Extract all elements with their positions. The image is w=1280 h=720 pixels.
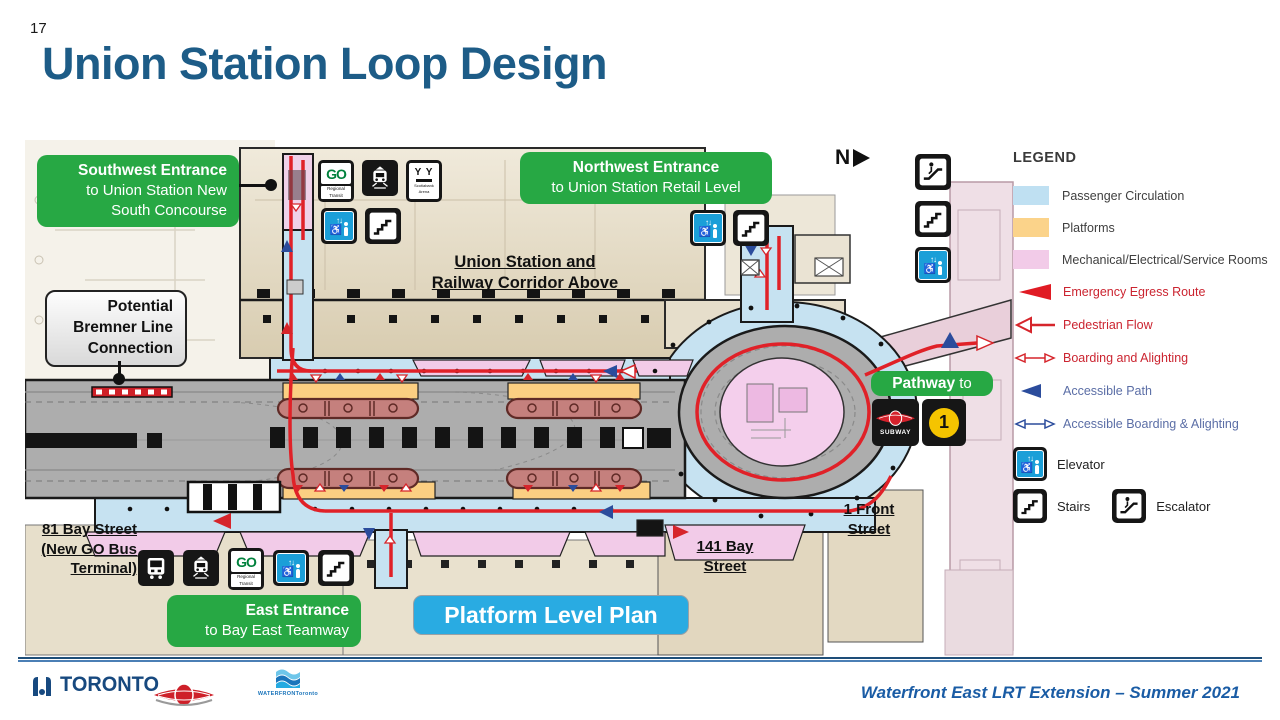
escalator-icon: [915, 154, 951, 190]
ttc-logo: [875, 409, 916, 427]
station-plan: Southwest Entrance to Union Station New …: [25, 140, 1015, 657]
go-transit-icon: GO Regional Transit: [228, 548, 264, 590]
ttc-logo: [152, 681, 216, 709]
stairs-icon: [318, 550, 354, 586]
bus-icon: [138, 550, 174, 586]
platform-level-plan-badge: Platform Level Plan: [413, 595, 689, 635]
page-title: Union Station Loop Design: [42, 38, 607, 90]
swatch-passenger-circulation: [1013, 186, 1049, 205]
stairs-icon: [915, 201, 951, 237]
legend-item-passenger-circulation: Passenger Circulation: [1013, 186, 1279, 205]
callout-east-entrance: East Entrance to Bay East Teamway: [167, 595, 361, 647]
stairs-icon: [733, 210, 769, 246]
label-1-front-street: 1 Front Street: [825, 500, 913, 539]
rail-icon: [183, 550, 219, 586]
legend-item-accessible-path: Accessible Path: [1013, 381, 1279, 401]
footer-divider: [18, 657, 1262, 662]
stairs-icon: [365, 208, 401, 244]
double-red-arrow-icon: [1013, 348, 1057, 368]
solid-blue-arrow-icon: [1013, 381, 1057, 401]
legend-item-stairs-escalator: Stairs Escalator: [1013, 489, 1279, 523]
callout-connector-dot: [265, 179, 277, 191]
legend-item-emergency-egress: Emergency Egress Route: [1013, 282, 1279, 302]
elevator-icon: ↑↓ ♿: [321, 208, 357, 244]
toronto-cityhall-icon: [28, 672, 56, 698]
solid-red-arrow-icon: [1013, 282, 1057, 302]
label-141-bay-street: 141 Bay Street: [675, 537, 775, 576]
go-transit-icon: GO Regional Transit: [318, 160, 354, 202]
legend: LEGEND Passenger Circulation Platforms M…: [1013, 150, 1279, 531]
double-blue-arrow-icon: [1013, 414, 1057, 434]
elevator-icon: ↑↓ ♿: [690, 210, 726, 246]
scotiabank-arena-icon: Y Y ScotiabankArena: [406, 160, 442, 202]
callout-pathway-to: Pathway to: [871, 371, 993, 396]
city-of-toronto-logo: TORONTO: [28, 672, 164, 698]
ttc-subway-icon: SUBWAY: [872, 399, 919, 446]
swatch-mechanical-rooms: [1013, 250, 1049, 269]
escalator-icon: [1112, 489, 1146, 523]
north-triangle-icon: [853, 149, 870, 167]
waterfront-waves-icon: [273, 666, 303, 690]
legend-item-pedestrian-flow: Pedestrian Flow: [1013, 315, 1279, 335]
north-arrow: N: [835, 146, 870, 170]
rail-icon: [362, 160, 398, 196]
page-number: 17: [30, 20, 47, 37]
slide: 17 Union Station Loop Design: [0, 0, 1280, 720]
label-81-bay-street: 81 Bay Street (New GO Bus Terminal): [25, 520, 137, 579]
stairs-icon: [1013, 489, 1047, 523]
callout-connector-dot: [113, 373, 125, 385]
callout-southwest-entrance: Southwest Entrance to Union Station New …: [37, 155, 239, 227]
footer-caption: Waterfront East LRT Extension – Summer 2…: [861, 683, 1240, 703]
open-red-arrow-icon: [1013, 315, 1057, 335]
callout-bremner-connection: Potential Bremner Line Connection: [45, 290, 187, 367]
waterfront-toronto-logo: WATERFRONToronto: [250, 666, 326, 697]
legend-title: LEGEND: [1013, 150, 1279, 166]
legend-item-accessible-boarding: Accessible Boarding & Alighting: [1013, 414, 1279, 434]
legend-item-mechanical-rooms: Mechanical/Electrical/Service Rooms: [1013, 250, 1279, 269]
label-railway-corridor: Union Station and Railway Corridor Above: [375, 252, 675, 295]
subway-line-1-icon: 1: [922, 399, 966, 446]
elevator-icon: ↑↓ ♿: [1013, 447, 1047, 481]
callout-northwest-entrance: Northwest Entrance to Union Station Reta…: [520, 152, 772, 204]
swatch-platforms: [1013, 218, 1049, 237]
legend-item-boarding-alighting: Boarding and Alighting: [1013, 348, 1279, 368]
mechanical-rooms-upper: [413, 360, 693, 376]
legend-item-elevator: ↑↓ ♿ Elevator: [1013, 447, 1279, 481]
legend-item-platforms: Platforms: [1013, 218, 1279, 237]
elevator-icon: ↑↓ ♿: [915, 247, 951, 283]
elevator-icon: ↑↓ ♿: [273, 550, 309, 586]
